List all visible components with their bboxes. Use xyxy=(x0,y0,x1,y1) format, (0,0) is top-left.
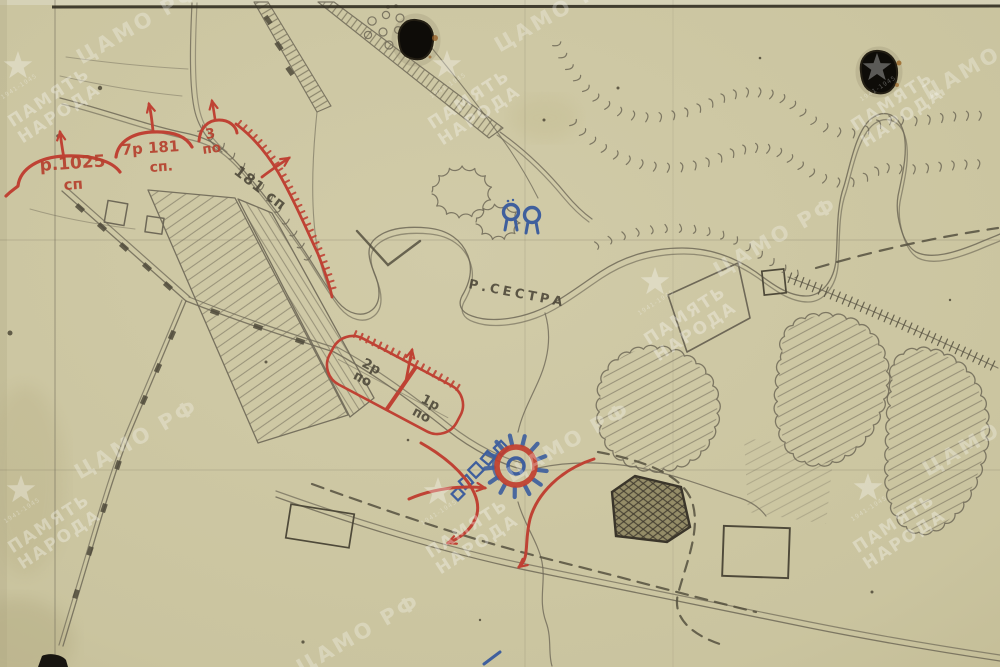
punch-hole-left xyxy=(399,20,433,59)
hatched-field xyxy=(744,438,834,524)
svg-text:по: по xyxy=(201,140,222,158)
map-canvas: Р.СЕСТРА xyxy=(0,0,1000,667)
dark-crosshatched-building xyxy=(612,476,690,542)
sheet-top-line xyxy=(52,6,1000,7)
svg-text:сп: сп xyxy=(63,175,83,194)
svg-text:сп.: сп. xyxy=(149,158,173,176)
archival-map-scan: Р.СЕСТРА xyxy=(0,0,1000,667)
